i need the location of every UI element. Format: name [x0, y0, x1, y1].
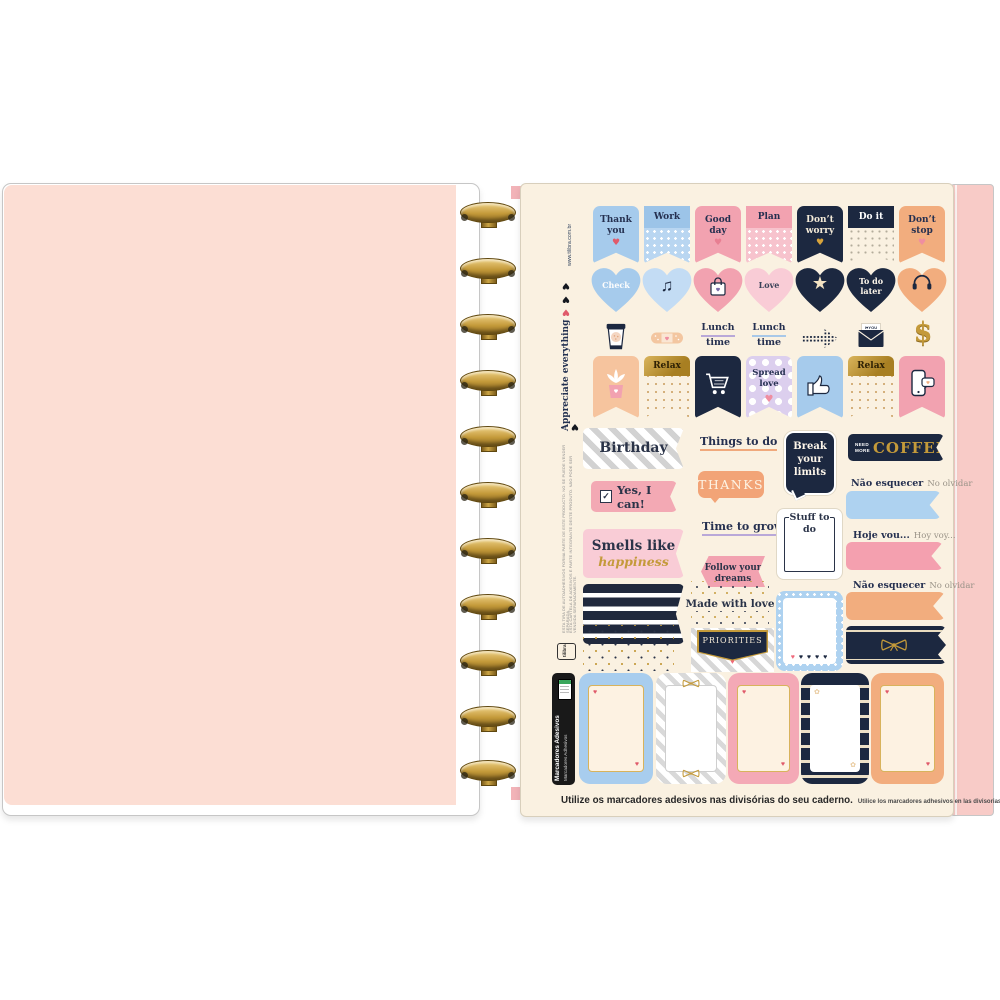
- sticker-pennant-do-it: Do it: [848, 206, 894, 263]
- speech-bubble-tail: [710, 497, 720, 503]
- heart-shape: [590, 266, 642, 314]
- flag-stripe: [846, 630, 946, 632]
- pennant-label: Don’t worry: [797, 215, 843, 237]
- binding-disc: [460, 594, 516, 620]
- sticker-frame-striped: [656, 673, 726, 784]
- pennant-label: Don’t stop: [899, 215, 945, 237]
- frame-inner-white: ♥ ♥ ♥ ♥ ♥: [783, 598, 836, 664]
- made-with-love-text: Made with love: [682, 597, 777, 611]
- binding-disc: [460, 706, 516, 732]
- pennant-dotted-body: [848, 228, 894, 268]
- heart-icon: ♥: [797, 238, 843, 248]
- frame-inner: ♥ ♥: [880, 685, 935, 772]
- binding-disc: [460, 426, 516, 452]
- bow-icon: [879, 637, 909, 653]
- website-url: www.tilibra.com.br: [568, 208, 573, 266]
- relax-gold-label: Relax: [644, 356, 690, 376]
- frame-hearts-row: ♥ ♥ ♥ ♥ ♥: [783, 654, 836, 661]
- sticker-banner-relax-1: Relax: [644, 356, 690, 418]
- binding-disc: [460, 314, 516, 340]
- sticker-tab-blue: [846, 491, 941, 519]
- sticker-pennant-plan: Plan: [746, 206, 792, 263]
- binding-disc: [460, 258, 516, 284]
- legal-text-es: ESTA TIRA DE AUTOADHESIVOS FORMA PARTE D…: [562, 441, 570, 633]
- sticker-heart-to-do-later: To do later: [845, 266, 897, 314]
- thumbs-up-icon: [807, 374, 834, 397]
- frame-inner: ♥ ♥: [737, 685, 790, 772]
- more-word: MORE: [855, 448, 870, 454]
- hoje-vou-pt: Hoje vou...: [853, 530, 910, 541]
- plant-icon: [604, 368, 628, 400]
- side-label-pt: Marcadores Adesivos: [555, 701, 561, 781]
- heart-icon: ♥: [635, 761, 639, 768]
- binding-disc: [460, 370, 516, 396]
- priorities-gold-border: PRIORITIES: [697, 630, 768, 661]
- sticker-tab-orange: [846, 592, 945, 620]
- yes-i-can-text: Yes, I can!: [617, 483, 677, 511]
- dollar-sign-icon: $: [913, 317, 933, 348]
- sticker-lunch-time-1: Lunch time: [698, 322, 738, 350]
- heart-icon: ♥: [781, 761, 785, 768]
- no-olvidar-es: No olvidar: [929, 581, 974, 591]
- sticker-stuff-to-do: Stuff to do: [776, 508, 843, 580]
- sticker-pennant-thank-you: Thank you ♥: [593, 206, 639, 263]
- envelope-icon: I♥YOU: [857, 323, 885, 348]
- hoy-voy-es: Hoy voy...: [914, 531, 956, 541]
- pennant-label: Plan: [758, 212, 781, 222]
- sticker-things-to-do: Things to do: [700, 435, 777, 451]
- pennant-band: Do it: [848, 206, 894, 228]
- sticker-banner-relax-2: Relax: [848, 356, 894, 418]
- heart-icon: ♥: [791, 654, 796, 661]
- checkbox-icon: ✓: [600, 490, 612, 503]
- sticker-pennant-good-day: Good day ♥: [695, 206, 741, 263]
- sticker-frame-navy-striped: ✿ ✿: [801, 673, 869, 784]
- frame-inner: [665, 685, 717, 772]
- tagline-text: Appreciate everything: [561, 320, 571, 431]
- binding-disc: [460, 538, 516, 564]
- sticker-heart-check: Check: [590, 266, 642, 314]
- nao-esquecer-text-2: Não esquecerNo olvidar: [853, 580, 975, 591]
- heart-label: To do later: [845, 277, 897, 296]
- flower-icon: ✿: [850, 761, 856, 769]
- need-word: NEED: [855, 442, 870, 448]
- flower-icon: ✿: [814, 688, 820, 696]
- hoje-vou-text: Hoje vou...Hoy voy...: [853, 530, 956, 541]
- frame-inner: ♥ ♥: [588, 685, 644, 772]
- side-label-es: Marcadores Adhesivos: [564, 703, 569, 781]
- notebook-cover-edge: [950, 184, 994, 816]
- cover-edge-highlight: [955, 185, 957, 815]
- sticker-banner-cart: [695, 356, 741, 418]
- no-olvidar-es: No olvidar: [927, 479, 972, 489]
- heart-shape: [743, 266, 795, 314]
- sticker-banner-plant: [593, 356, 639, 418]
- heart-icon: ♥: [695, 238, 741, 248]
- left-page-pink-sheet: [4, 185, 456, 805]
- tilibra-logo-text: tilibra: [563, 645, 568, 657]
- sticker-banner-spread-love: Spread love ♥: [746, 356, 792, 418]
- headphones-icon: [911, 274, 933, 290]
- smells-line2: happiness: [583, 554, 684, 569]
- sticker-heart-music: ♫: [641, 266, 693, 314]
- flag-stripe: [846, 659, 946, 661]
- heart-icon: ♥: [885, 689, 889, 696]
- binding-disc: [460, 760, 516, 786]
- product-photo: www.tilibra.com.br Appreciate everything…: [0, 0, 1000, 1000]
- sticker-birthday: Birthday: [583, 428, 684, 469]
- phone-chat-icon: [909, 369, 936, 399]
- heart-icon: ♥: [926, 761, 930, 768]
- sticker-banner-thumbs-up: [797, 356, 843, 418]
- stuff-to-do-text: Stuff to do: [789, 512, 830, 536]
- follow-line1: Follow your: [701, 563, 765, 574]
- heart-icon: ♥: [593, 689, 597, 696]
- smells-line1: Smells like: [583, 538, 684, 554]
- sticker-lunch-time-2: Lunch time: [749, 322, 789, 350]
- bow-icon: [681, 679, 701, 688]
- pennant-label: Good day: [695, 215, 741, 237]
- sticker-frame-pink: ♥ ♥: [728, 673, 799, 784]
- sticker-pennant-dont-worry: Don’t worry ♥: [797, 206, 843, 263]
- bottom-caption: Utilize os marcadores adesivos nas divis…: [561, 790, 953, 808]
- heart-label: Check: [590, 280, 642, 290]
- relax-gold-label: Relax: [848, 356, 894, 376]
- sticker-sheet: www.tilibra.com.br Appreciate everything…: [520, 183, 954, 817]
- coffee-cup-icon: [605, 321, 627, 351]
- notebook-left-page: [2, 183, 480, 816]
- sticker-priorities: PRIORITIES: [699, 632, 767, 660]
- pennant-label: Work: [654, 212, 680, 222]
- music-note-icon: ♫: [641, 276, 693, 296]
- sticker-smells-like-happiness: Smells like happiness: [583, 529, 684, 578]
- shopping-bag-icon: [708, 276, 728, 298]
- nao-esquecer-pt: Não esquecer: [851, 478, 923, 489]
- sticker-pennant-work: Work: [644, 206, 690, 263]
- pennant-band: Work: [644, 206, 690, 228]
- heart-icon: ♥: [746, 394, 792, 405]
- bow-icon: [681, 769, 701, 778]
- sticker-dots-patch: [583, 625, 674, 671]
- caption-pt: Utilize os marcadores adesivos nas divis…: [561, 795, 853, 806]
- heart-label: Love: [743, 280, 795, 290]
- notebook-icon: [558, 679, 572, 700]
- pennant-dotted-body: [746, 228, 792, 268]
- envelope-note-text: I♥YOU: [861, 325, 881, 330]
- sticker-heart-headphones: [896, 266, 948, 314]
- nao-esquecer-pt: Não esquecer: [853, 580, 925, 591]
- dotted-arrow-icon: [802, 328, 838, 349]
- spread-love-label: Spread love: [746, 368, 792, 389]
- tagline-vertical: Appreciate everything ♥ ♥ ♥ ♥: [562, 271, 580, 431]
- band-aid-icon: [650, 331, 684, 345]
- priorities-striped-patch: PRIORITIES ♥: [691, 628, 774, 672]
- heart-icon: ♥: [593, 238, 639, 248]
- sticker-break-your-limits: Break your limits: [784, 431, 836, 495]
- sticker-navy-bow-flag: [846, 626, 946, 664]
- tilibra-logo: tilibra: [557, 643, 576, 660]
- binding-disc: [460, 202, 516, 228]
- sticker-blue-dotted-frame: ♥ ♥ ♥ ♥ ♥: [776, 591, 843, 671]
- pennant-dotted-body: [644, 228, 690, 268]
- nao-esquecer-text-1: Não esquecerNo olvidar: [851, 478, 973, 489]
- time-word: time: [698, 337, 738, 350]
- caption-es: Utilice los marcadores adhesivos en las …: [858, 799, 1000, 805]
- sticker-made-with-love: Made with love: [691, 581, 769, 627]
- coffee-word: COFFEE: [873, 439, 948, 457]
- sticker-banner-phone: [899, 356, 945, 418]
- heart-icon: ♥: [899, 238, 945, 248]
- sticker-need-more-coffee: NEED MORE COFFEE: [848, 434, 944, 461]
- speech-bubble-tail: [791, 486, 806, 501]
- hearts-icons: ♥ ♥ ♥ ♥: [799, 654, 828, 661]
- need-more-text: NEED MORE: [855, 442, 870, 454]
- star-icon: ★: [794, 273, 846, 294]
- side-label-marcadores: Marcadores Adesivos Marcadores Adhesivos: [552, 673, 575, 785]
- time-word: time: [749, 337, 789, 350]
- sticker-heart-love: Love: [743, 266, 795, 314]
- lunch-word: Lunch: [701, 322, 734, 337]
- shopping-cart-icon: [705, 372, 731, 396]
- sticker-tab-pink: [846, 542, 943, 570]
- sticker-pennant-dont-stop: Don’t stop ♥: [899, 206, 945, 263]
- heart-icon: ♥: [742, 689, 746, 696]
- tagline-heart-pink: ♥: [561, 306, 571, 316]
- sticker-time-to-grow: Time to grow: [702, 520, 783, 536]
- heart-icon: ♥: [691, 659, 774, 666]
- legal-text-pt: ESTA CARTELA DE ADESIVOS É PARTE INTEGRA…: [569, 441, 577, 633]
- sticker-heart-bag: [692, 266, 744, 314]
- thanks-text: THANKS: [698, 477, 764, 492]
- sticker-yes-i-can: ✓ Yes, I can!: [591, 481, 677, 512]
- frame-inner: ✿ ✿: [810, 685, 860, 772]
- binding-disc: [460, 650, 516, 676]
- break-limits-text: Break your limits: [786, 440, 834, 479]
- lunch-word: Lunch: [752, 322, 785, 337]
- pennant-label: Thank you: [593, 215, 639, 237]
- sticker-frame-peach: ♥ ♥: [871, 673, 944, 784]
- sticker-thanks: THANKS: [698, 471, 764, 498]
- pennant-band: Plan: [746, 206, 792, 228]
- sticker-frame-blue: ♥ ♥: [579, 673, 653, 784]
- pennant-label: Do it: [859, 212, 884, 222]
- sticker-heart-star: ★: [794, 266, 846, 314]
- binding-disc: [460, 482, 516, 508]
